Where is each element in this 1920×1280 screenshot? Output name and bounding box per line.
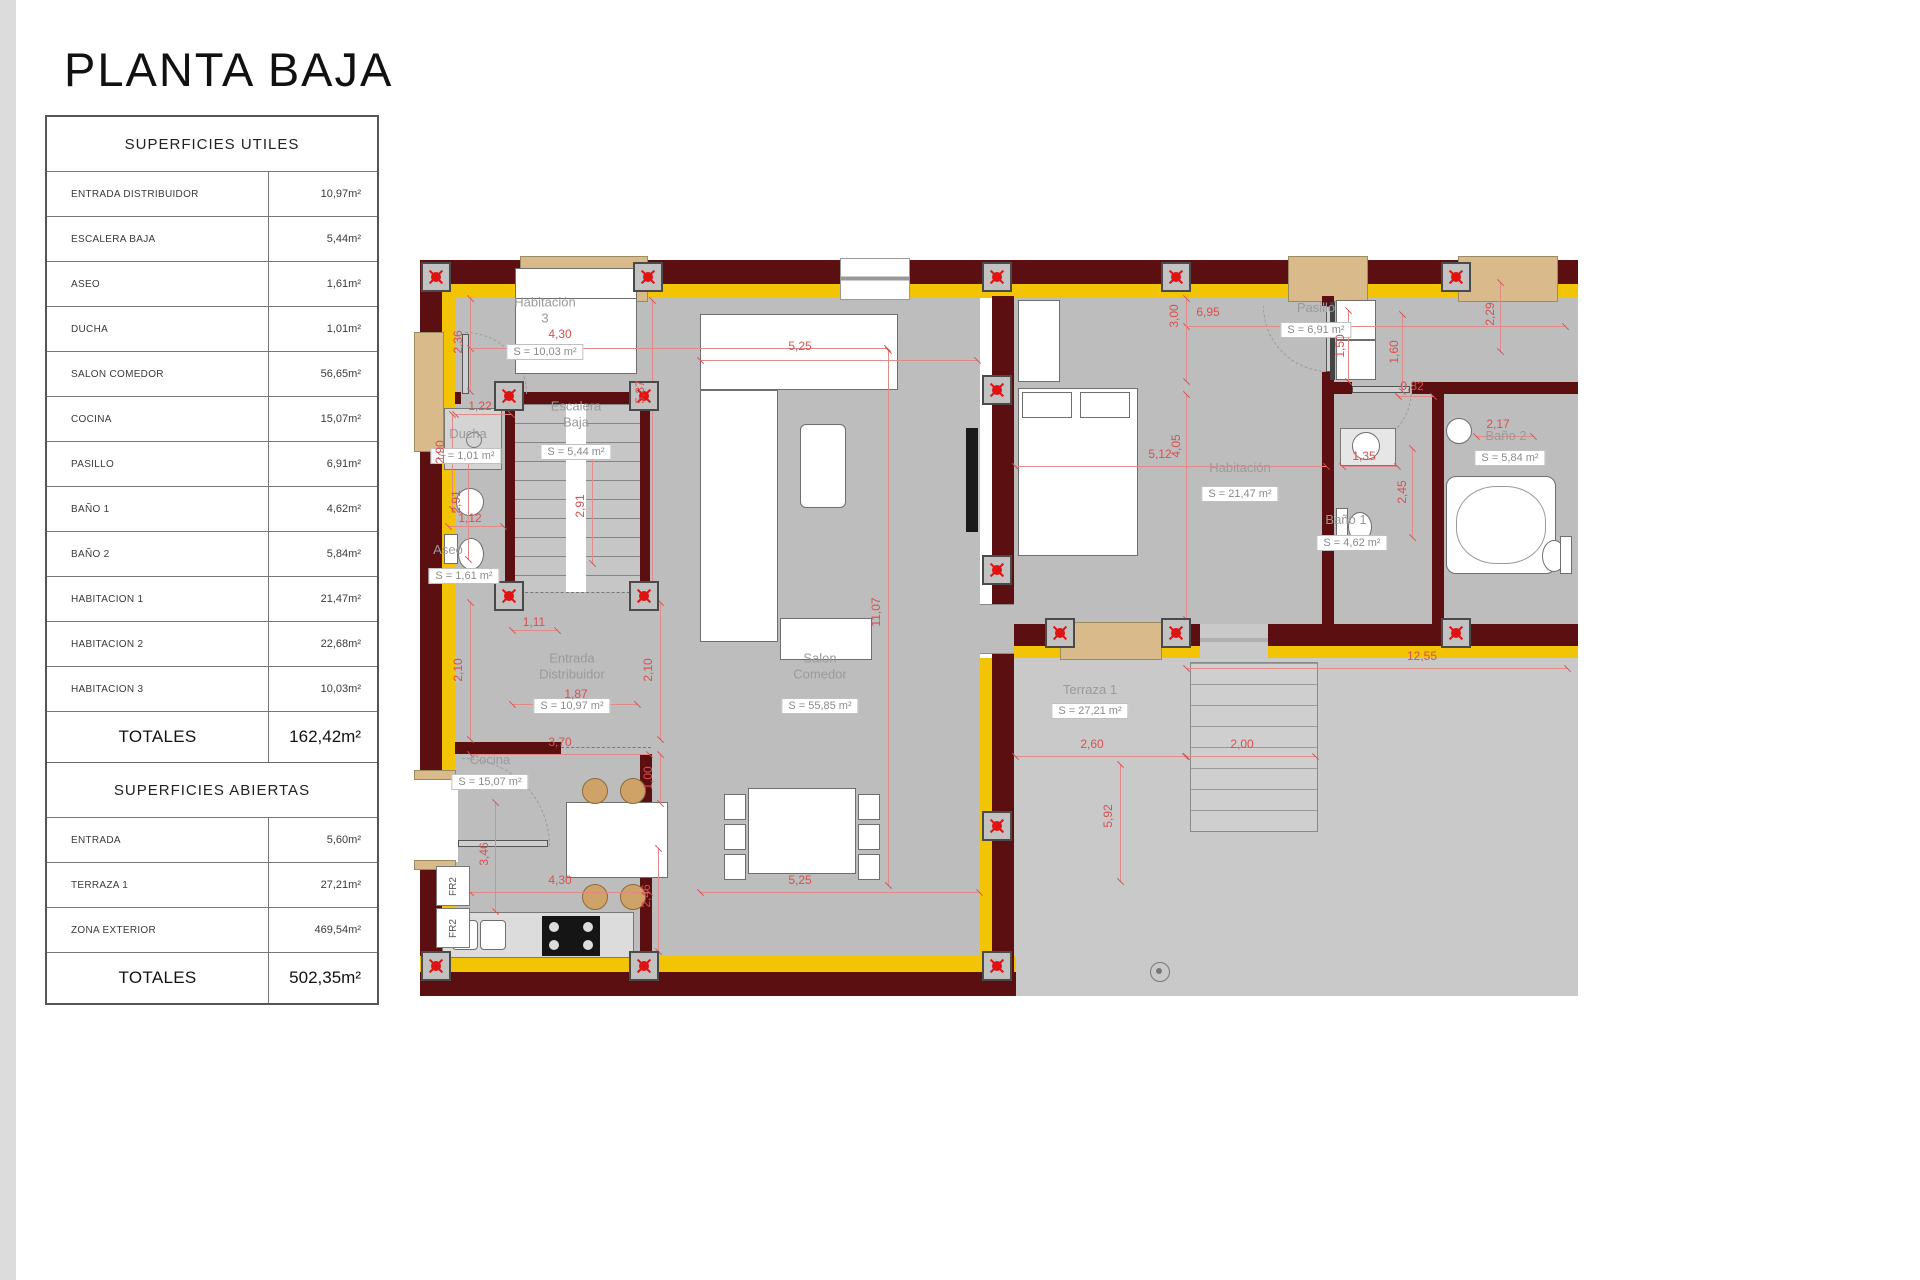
dimension-line	[1398, 396, 1434, 397]
dimension-line	[700, 360, 978, 361]
dimension-line	[1120, 764, 1121, 882]
room-name-label: Pasillo	[1297, 300, 1335, 316]
dimension-line	[1342, 466, 1398, 467]
room-area-label: S = 55,85 m²	[781, 698, 858, 714]
pier-red-marker	[431, 961, 441, 971]
terrace-steps	[1190, 662, 1318, 832]
dim-label: 4,30	[548, 327, 571, 341]
dim-label: 3,46	[477, 842, 491, 865]
tv-unit	[966, 428, 978, 532]
window-bedroom1	[1060, 622, 1162, 660]
door-terrace-glass	[1200, 638, 1268, 642]
wall-pier	[494, 381, 524, 411]
room-name-label: Cocina	[470, 752, 510, 768]
door-main-gap	[414, 778, 458, 862]
window-bano2	[1458, 256, 1558, 302]
dim-label: 2,46	[639, 884, 653, 907]
wall-pier	[629, 581, 659, 611]
dim-label: 2,60	[1080, 737, 1103, 751]
fridge-label: FR2	[436, 866, 470, 906]
dim-label: 2,29	[1483, 302, 1497, 325]
pier-red-marker	[1171, 628, 1181, 638]
pier-red-marker	[1451, 628, 1461, 638]
dining-table	[748, 788, 856, 874]
kitchen-chair	[582, 778, 608, 804]
dim-label: 4,05	[1169, 434, 1183, 457]
dimension-line	[1186, 326, 1566, 327]
dim-label: 0,82	[1400, 379, 1423, 393]
dining-chair	[724, 824, 746, 850]
pier-red-marker	[992, 565, 1002, 575]
pillow	[1080, 392, 1130, 418]
dining-chair	[858, 824, 880, 850]
dimension-line	[1348, 310, 1349, 382]
dimension-line	[1186, 756, 1316, 757]
room-area-label: S = 1,61 m²	[428, 568, 499, 584]
dim-label: 2,36	[451, 330, 465, 353]
dimension-line	[470, 298, 471, 392]
sofa-chaise	[700, 390, 778, 642]
dimension-line	[1500, 282, 1501, 352]
dimension-line	[1412, 448, 1413, 538]
dim-label: 6,95	[1196, 305, 1219, 319]
room-name-label: Habitación	[1209, 460, 1270, 476]
dim-label: 1,11	[523, 615, 545, 629]
pier-red-marker	[992, 821, 1002, 831]
dimension-line	[470, 892, 650, 893]
pier-red-marker	[639, 961, 649, 971]
pier-red-marker	[643, 272, 653, 282]
dimension-line	[495, 802, 496, 912]
dimension-line	[1186, 298, 1187, 382]
wall-bottom-insulation	[420, 956, 1016, 972]
fridge-label-text: FR2	[448, 877, 459, 896]
room-name-label: Salon Comedor	[793, 650, 846, 681]
dim-label: 2,91	[573, 494, 587, 517]
wall-pier	[494, 581, 524, 611]
dim-label: 5,37	[633, 380, 647, 403]
floor-plan-drawing: Habitación 3S = 10,03 m²Escalera BajaS =…	[0, 0, 1578, 1280]
wardrobe-hab1	[1018, 300, 1060, 382]
dim-label: 1,22	[468, 399, 491, 413]
door-main-leaf	[458, 840, 548, 847]
room-area-label: S = 27,21 m²	[1051, 703, 1128, 719]
dimension-line	[512, 630, 558, 631]
dim-label: 2,00	[1230, 737, 1253, 751]
stove	[542, 916, 600, 956]
wall-bano-divider	[1432, 394, 1444, 624]
dimension-line	[448, 526, 504, 527]
dim-label: 5,25	[788, 873, 811, 887]
room-name-label: Terraza 1	[1063, 682, 1117, 698]
dim-label: 1,00	[641, 766, 655, 789]
wall-pier	[982, 375, 1012, 405]
dimension-line	[658, 848, 659, 952]
dimension-line	[1015, 756, 1186, 757]
dim-label: 3,70	[548, 735, 571, 749]
dining-chair	[858, 854, 880, 880]
fridge-label: FR2	[436, 908, 470, 948]
pier-red-marker	[639, 591, 649, 601]
dimension-line	[1186, 668, 1568, 669]
dimension-line	[1015, 466, 1327, 467]
wall-pier	[421, 262, 451, 292]
wall-pier	[421, 951, 451, 981]
room-area-label: S = 4,62 m²	[1316, 535, 1387, 551]
dim-label: 1,35	[1352, 449, 1375, 463]
wall-bottom	[420, 972, 1016, 996]
dim-label: 12,55	[1407, 649, 1437, 663]
pier-red-marker	[992, 961, 1002, 971]
dimension-line	[470, 602, 471, 740]
dim-label: 2,10	[451, 658, 465, 681]
pier-red-marker	[1055, 628, 1065, 638]
wall-pier	[982, 951, 1012, 981]
dimension-line	[468, 452, 469, 560]
window-salon	[840, 258, 910, 300]
wall-pier	[1161, 262, 1191, 292]
dimension-line	[592, 456, 593, 564]
dining-chair	[724, 794, 746, 820]
dimension-line	[660, 602, 661, 740]
terrace-drain-center	[1156, 968, 1162, 974]
pier-red-marker	[992, 272, 1002, 282]
pier-red-marker	[504, 391, 514, 401]
dim-label: 2,17	[1486, 417, 1509, 431]
room-name-label: Entrada Distribuidor	[539, 650, 605, 681]
pier-red-marker	[1451, 272, 1461, 282]
room-name-label: Escalera Baja	[551, 398, 602, 429]
dim-label: 1,50	[1333, 334, 1347, 357]
wall-pier	[1441, 618, 1471, 648]
dim-label: 3,00	[1167, 304, 1181, 327]
wall-pier	[1161, 618, 1191, 648]
dim-label: 4,30	[548, 873, 571, 887]
wall-stair-west	[505, 404, 515, 592]
wall-pier	[982, 555, 1012, 585]
wall-stair-east	[640, 404, 650, 592]
room-area-label: S = 10,03 m²	[506, 344, 583, 360]
bathtub-inner	[1456, 486, 1546, 564]
dim-label: 2,90	[433, 440, 447, 463]
dining-chair	[858, 794, 880, 820]
room-name-label: Ducha	[449, 426, 487, 442]
dimension-line	[660, 754, 661, 804]
coffee-table	[800, 424, 846, 508]
wall-pier	[982, 262, 1012, 292]
wall-pier	[1441, 262, 1471, 292]
stair-bottom-edge	[515, 592, 640, 593]
dimension-line	[455, 414, 512, 415]
pier-red-marker	[992, 385, 1002, 395]
pillow	[1022, 392, 1072, 418]
dining-chair	[724, 854, 746, 880]
pier-red-marker	[431, 272, 441, 282]
wall-pier	[982, 811, 1012, 841]
kitchen-table	[566, 802, 668, 878]
dim-label: 1,60	[1387, 340, 1401, 363]
sink-bano2	[1446, 418, 1472, 444]
pier-red-marker	[1171, 272, 1181, 282]
dim-label: 5,25	[788, 339, 811, 353]
room-area-label: S = 15,07 m²	[451, 774, 528, 790]
dim-label: 11,07	[869, 597, 883, 626]
room-area-label: S = 5,84 m²	[1474, 450, 1545, 466]
window-left-wall	[414, 332, 444, 452]
wall-pier	[633, 262, 663, 292]
fridge-label-text: FR2	[448, 919, 459, 938]
wall-salon-east-insulation	[980, 658, 992, 956]
dim-label: 1,87	[564, 687, 587, 701]
toilet-bano2-tank	[1560, 536, 1572, 574]
wall-pier	[629, 951, 659, 981]
wall-entrada-cocina-dashed	[561, 747, 651, 748]
dimension-line	[888, 350, 889, 886]
room-name-label: Aseo	[433, 542, 463, 558]
dimension-line	[1186, 394, 1187, 620]
floor-plan-page: PLANTA BAJA SUPERFICIES UTILESENTRADA DI…	[0, 0, 1920, 1280]
kitchen-chair	[582, 884, 608, 910]
room-area-label: S = 5,44 m²	[540, 444, 611, 460]
room-name-label: Baño 1	[1325, 512, 1366, 528]
opening-salon-bedroom	[980, 604, 1014, 654]
dim-label: 2,45	[1395, 480, 1409, 503]
dimension-line	[652, 300, 653, 592]
wall-pier	[1045, 618, 1075, 648]
door-main-sill-top	[414, 770, 456, 780]
dim-label: 5,92	[1101, 804, 1115, 827]
dim-label: 2,10	[641, 658, 655, 681]
room-name-label: Habitación 3	[514, 294, 575, 325]
room-area-label: S = 21,47 m²	[1201, 486, 1278, 502]
kitchen-sink	[480, 920, 506, 950]
pier-red-marker	[504, 591, 514, 601]
dimension-line	[700, 892, 980, 893]
dim-label: 1,12	[458, 511, 481, 525]
wall-pasillo-south-b	[1412, 382, 1578, 394]
